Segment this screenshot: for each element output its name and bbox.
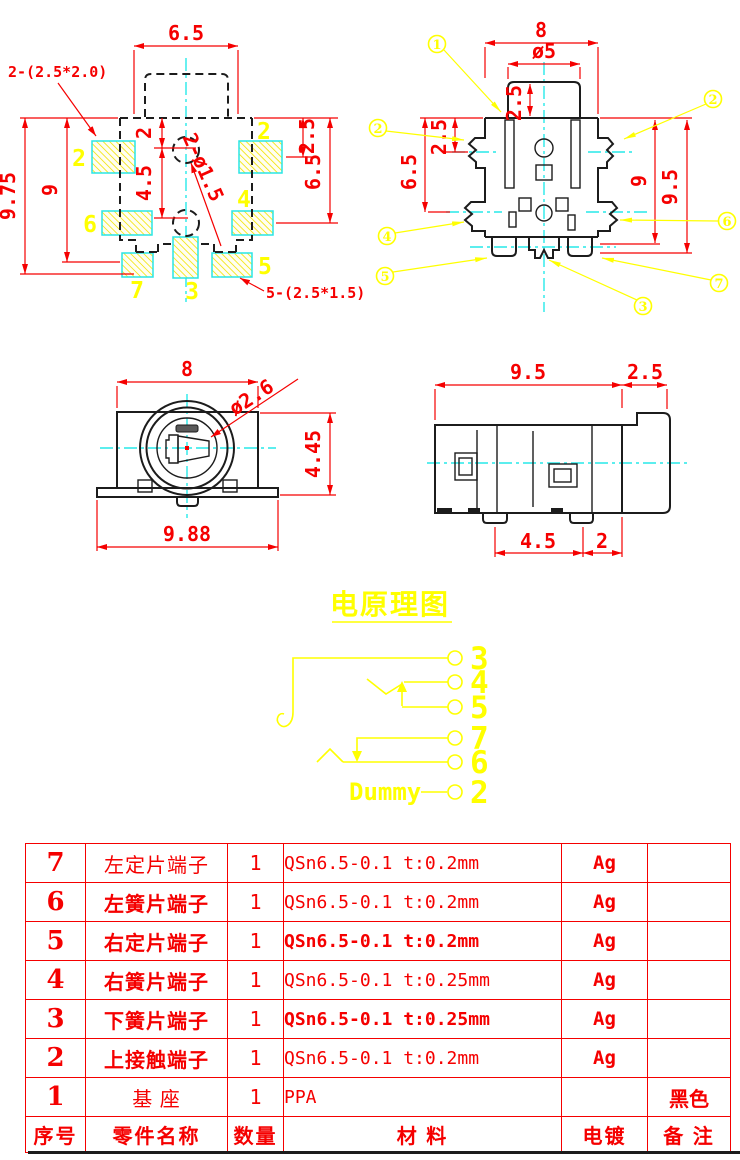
dim-boss-diameter: ø5 bbox=[532, 39, 556, 63]
bom-cell-name: 右定片端子 bbox=[86, 922, 228, 961]
dim-feet-pitch: 4.5 bbox=[520, 529, 556, 553]
sheet-frame-line bbox=[28, 1151, 740, 1154]
dim-inner-height: 9 bbox=[38, 184, 62, 196]
dim-width: 6.5 bbox=[168, 21, 204, 45]
bom-cell-plating: Ag bbox=[562, 844, 648, 883]
bom-cell-no: 1 bbox=[26, 1078, 86, 1117]
arrow-down-icon bbox=[352, 751, 362, 762]
pad-label: 7 bbox=[130, 278, 144, 304]
dim-right-inner: 9 bbox=[627, 175, 651, 187]
terminal-circle bbox=[448, 675, 462, 689]
table-row: 2 上接触端子 1 QSn6.5-0.1 t:0.2mm Ag bbox=[26, 1039, 731, 1078]
bom-cell-qty: 1 bbox=[228, 961, 284, 1000]
side-outline bbox=[435, 413, 670, 523]
pad-label: 5 bbox=[258, 254, 272, 280]
pad-2-left bbox=[92, 141, 135, 173]
front-view: 8 ø2.6 4.45 9.88 bbox=[97, 357, 336, 551]
bom-cell-note bbox=[648, 961, 731, 1000]
bom-cell-no: 6 bbox=[26, 883, 86, 922]
bom-header-no: 序号 bbox=[26, 1117, 86, 1153]
terminal-circle bbox=[448, 651, 462, 665]
dim-hole-pitch: 4.5 bbox=[132, 165, 156, 201]
table-row: 1 基 座 1 PPA 黑色 bbox=[26, 1078, 731, 1117]
table-row: 6 左簧片端子 1 QSn6.5-0.1 t:0.2mm Ag bbox=[26, 883, 731, 922]
table-row: 5 右定片端子 1 QSn6.5-0.1 t:0.2mm Ag bbox=[26, 922, 731, 961]
bom-cell-plating: Ag bbox=[562, 1000, 648, 1039]
footprint-view: 2 2 6 4 7 3 5 6.5 9.75 9 2 4.5 2.5 bbox=[0, 21, 365, 305]
bom-cell-qty: 1 bbox=[228, 844, 284, 883]
dim-right-lower: 6.5 bbox=[301, 154, 325, 190]
spring-contact-6 bbox=[317, 749, 343, 762]
tip-contact-hook bbox=[277, 712, 293, 727]
bom-cell-name: 右簧片端子 bbox=[86, 961, 228, 1000]
note-side-pads: 2-(2.5*2.0) bbox=[8, 63, 107, 81]
centerlines bbox=[446, 62, 648, 312]
dim-boss-height: 2.5 bbox=[502, 85, 526, 121]
table-row: 3 下簧片端子 1 QSn6.5-0.1 t:0.25mm Ag bbox=[26, 1000, 731, 1039]
bom-cell-note bbox=[648, 844, 731, 883]
bom-cell-qty: 1 bbox=[228, 922, 284, 961]
pad-5 bbox=[212, 253, 252, 277]
pad-2-right bbox=[239, 141, 282, 173]
schematic-title: 电原理图 bbox=[330, 589, 450, 620]
terminal-circle bbox=[448, 731, 462, 745]
bom-table: 7 左定片端子 1 QSn6.5-0.1 t:0.2mm Ag 6 左簧片端子 … bbox=[25, 843, 731, 1153]
bom-header-note: 备 注 bbox=[648, 1117, 731, 1153]
bom-header-qty: 数量 bbox=[228, 1117, 284, 1153]
bom-header-material: 材 料 bbox=[284, 1117, 562, 1153]
bom-cell-qty: 1 bbox=[228, 1039, 284, 1078]
schematic-wires bbox=[277, 658, 448, 792]
pad-label: 3 bbox=[185, 279, 199, 305]
center-mark bbox=[185, 446, 189, 450]
schematic: 电原理图 3 4 5 7 6 2 bbox=[277, 589, 488, 811]
dim-right-outer: 9.5 bbox=[658, 169, 682, 205]
pad-label: 2 bbox=[257, 119, 271, 145]
bom-cell-plating: Ag bbox=[562, 961, 648, 1000]
bom-cell-note bbox=[648, 883, 731, 922]
callout-label: 3 bbox=[638, 300, 647, 315]
bom-cell-plating: Ag bbox=[562, 1039, 648, 1078]
technical-drawing: 2 2 6 4 7 3 5 6.5 9.75 9 2 4.5 2.5 bbox=[0, 0, 740, 843]
bom-cell-name: 基 座 bbox=[86, 1078, 228, 1117]
note-bottom-pads: 5-(2.5*1.5) bbox=[266, 284, 365, 302]
callout-label: 1 bbox=[432, 38, 441, 53]
callout-label: 7 bbox=[714, 277, 723, 292]
bom-cell-plating: Ag bbox=[562, 883, 648, 922]
spring-contact-4 bbox=[367, 679, 402, 694]
dim-width: 8 bbox=[181, 357, 193, 381]
pad-label: 6 bbox=[83, 212, 97, 238]
table-header-row: 序号 零件名称 数量 材 料 电镀 备 注 bbox=[26, 1117, 731, 1153]
schematic-terminals: 3 4 5 7 6 2 Dummy bbox=[349, 641, 489, 811]
bom-cell-name: 下簧片端子 bbox=[86, 1000, 228, 1039]
table-row: 4 右簧片端子 1 QSn6.5-0.1 t:0.25mm Ag bbox=[26, 961, 731, 1000]
pad-3 bbox=[173, 237, 198, 278]
bom-cell-plating: Ag bbox=[562, 922, 648, 961]
pad-label: 2 bbox=[72, 146, 86, 172]
bom-cell-material: QSn6.5-0.1 t:0.2mm bbox=[284, 922, 562, 961]
table-row: 7 左定片端子 1 QSn6.5-0.1 t:0.2mm Ag bbox=[26, 844, 731, 883]
bom-cell-name: 左定片端子 bbox=[86, 844, 228, 883]
pad-6 bbox=[102, 211, 152, 235]
bom-cell-no: 5 bbox=[26, 922, 86, 961]
bom-cell-no: 7 bbox=[26, 844, 86, 883]
bom-cell-no: 4 bbox=[26, 961, 86, 1000]
dim-hole-offset: 2 bbox=[132, 127, 156, 139]
body-outline bbox=[465, 82, 617, 258]
note-holes: 2-ø1.5 bbox=[178, 129, 229, 205]
bom-cell-plating bbox=[562, 1078, 648, 1117]
bom-cell-no: 3 bbox=[26, 1000, 86, 1039]
terminal-circle bbox=[448, 785, 462, 799]
terminal-label: 2 bbox=[470, 775, 489, 811]
dim-base-width: 9.88 bbox=[163, 522, 211, 546]
bom-cell-material: QSn6.5-0.1 t:0.25mm bbox=[284, 961, 562, 1000]
side-view: 9.5 2.5 4.5 2 bbox=[427, 360, 690, 557]
bom-header-plating: 电镀 bbox=[562, 1117, 648, 1153]
bom-cell-material: QSn6.5-0.1 t:0.2mm bbox=[284, 844, 562, 883]
bom-cell-material: QSn6.5-0.1 t:0.2mm bbox=[284, 883, 562, 922]
bom-cell-qty: 1 bbox=[228, 883, 284, 922]
inner-top-bar bbox=[176, 425, 198, 432]
bom-cell-material: QSn6.5-0.1 t:0.2mm bbox=[284, 1039, 562, 1078]
bom-header-name: 零件名称 bbox=[86, 1117, 228, 1153]
pad-label: 4 bbox=[237, 187, 251, 213]
dim-height: 4.45 bbox=[301, 430, 325, 478]
bom-cell-note bbox=[648, 1000, 731, 1039]
dummy-label: Dummy bbox=[349, 778, 421, 806]
dim-rear-length: 2.5 bbox=[627, 360, 663, 384]
bottom-view: 8 ø5 2.5 2.5 6.5 9 9.5 1 bbox=[370, 18, 736, 315]
bom-cell-note bbox=[648, 922, 731, 961]
bom-cell-material: QSn6.5-0.1 t:0.25mm bbox=[284, 1000, 562, 1039]
bom-cell-name: 上接触端子 bbox=[86, 1039, 228, 1078]
terminal-circle bbox=[448, 700, 462, 714]
bom-cell-material: PPA bbox=[284, 1078, 562, 1117]
bom-cell-no: 2 bbox=[26, 1039, 86, 1078]
terminal-circle bbox=[448, 755, 462, 769]
callout-label: 2 bbox=[373, 122, 382, 137]
callout-label: 5 bbox=[380, 270, 389, 285]
bom-cell-note bbox=[648, 1039, 731, 1078]
bom-cell-note: 黑色 bbox=[648, 1078, 731, 1117]
callout-label: 2 bbox=[708, 93, 717, 108]
drawing-sheet: 2 2 6 4 7 3 5 6.5 9.75 9 2 4.5 2.5 bbox=[0, 0, 740, 1160]
bom-cell-qty: 1 bbox=[228, 1000, 284, 1039]
callout-label: 4 bbox=[382, 230, 391, 245]
bom-cell-name: 左簧片端子 bbox=[86, 883, 228, 922]
dim-foot-edge: 2 bbox=[596, 529, 608, 553]
dim-total-height: 9.75 bbox=[0, 172, 20, 220]
dim-right-upper: 2.5 bbox=[295, 118, 319, 154]
dim-left-lower: 6.5 bbox=[397, 154, 421, 190]
callout-label: 6 bbox=[722, 215, 731, 230]
bom-cell-qty: 1 bbox=[228, 1078, 284, 1117]
dim-body-length: 9.5 bbox=[510, 360, 546, 384]
